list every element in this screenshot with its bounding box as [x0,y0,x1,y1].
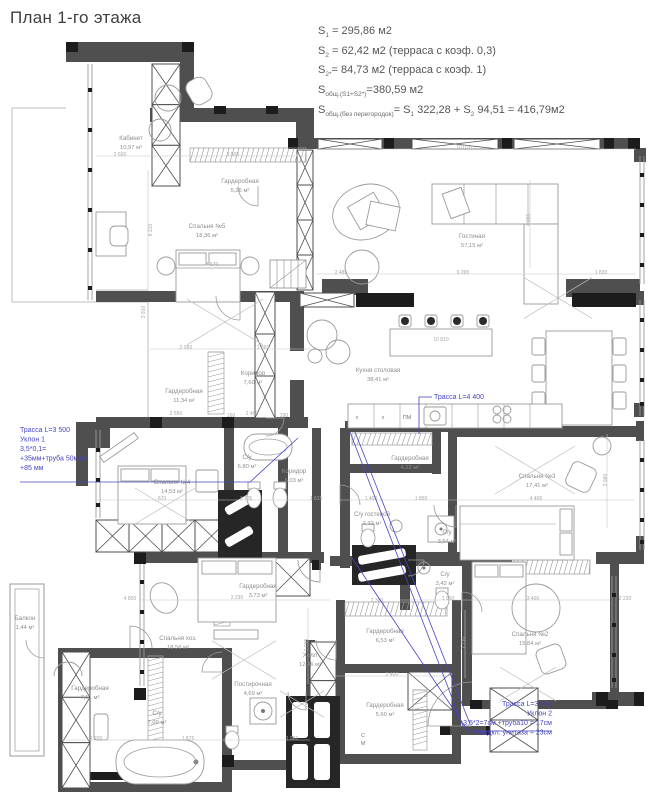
room-label: Гардеробная [165,388,202,395]
room-label: Коридор [282,468,307,475]
room-area: 18,36 м² [196,233,218,239]
plumbing-annotation: Трасса L=4 400 [434,394,484,401]
room-area: 18,56 м² [167,645,189,651]
plumbing-annotation: Уклон 2 [527,711,552,718]
room-label: С/у [242,454,252,461]
room-area: 2,32 м² [363,521,382,527]
dimension-text: 1 705 [240,496,253,502]
dimension-text: 1 830 [595,270,608,276]
dimension-text: 1 850 [415,496,428,502]
room-area: 6,53 м² [376,638,395,644]
dimension-text: 3 505 [227,152,240,158]
room-label: Кабинет [119,135,143,142]
room-area: 3,54 м² [438,539,457,545]
room-area: 57,15 м² [461,243,483,249]
room-area: 6,03 м² [285,478,304,484]
dimension-text: 2 230 [619,596,632,602]
room-label: Спальня №4 [154,479,191,486]
dimension-text: 4 850 [124,596,137,602]
room-label: Спальня №2 [512,631,549,638]
room-area: 7,60 м² [244,380,263,386]
dimension-text: 4 400 [530,496,543,502]
dimension-text: 670 [158,496,167,502]
room-area: 3,73 м² [249,593,268,599]
room-area: 15,84 м² [519,641,541,647]
room-label: Спальня №3 [519,473,556,480]
plumbing-annotation: 3,5*0,1= [20,446,46,453]
dimension-text: 1 615 [310,496,323,502]
plumbing-annotation: Н подкл. унитаза = 23см [473,730,552,737]
dimension-text: 10 810 [433,337,449,343]
fixture-label: С [361,733,365,739]
dimension-text: 2 400 [386,672,399,678]
room-area: 4,22 м² [401,465,420,471]
room-area: 12,46 м² [299,662,321,668]
dimension-text: 2 200 [90,736,103,742]
fixture-label: ПМ [403,415,412,421]
room-area: 7,09 м² [148,720,167,726]
dimension-text: 3 910 [141,306,147,319]
room-area: 4,69 м² [244,691,263,697]
room-area: 1,44 м² [16,625,35,631]
floor-plan-drawing: Кабинет10,97 м²Гардеробная5,26 м²Спальня… [0,0,651,800]
room-area: 7,51 м² [81,695,100,701]
dimension-text: 3 400 [527,596,540,602]
dimension-text: 1 095 [304,639,310,652]
floor-plan-page: План 1-го этажа S1 = 295,86 м2S2 = 62,42… [0,0,651,800]
room-area: 6,80 м² [238,464,257,470]
plumbing-annotation: Уклон 1 [20,437,45,444]
room-label: Гардеробная [366,628,403,635]
room-area: 3,42 м² [436,581,455,587]
room-label: С/у [440,571,450,578]
dimension-text: 2 600 [114,152,127,158]
plumbing-annotation: +35мм+труба 50мм= [20,455,87,463]
dimension-text: 160 [227,413,236,419]
room-label: Постирочная [234,681,271,688]
room-label: Гардеробная [391,455,428,462]
dimension-text: 2 360 [371,598,384,604]
room-label: Гардеробная [221,178,258,185]
dimension-text: 3 980 [603,474,609,487]
dimension-text: 2 950 [180,345,193,351]
plumbing-annotation: Трасса L=3 500 [20,427,70,434]
room-area: 11,34 м² [173,398,195,404]
dimension-text: 6 295 [457,270,470,276]
dimension-text: 8 310 [148,224,154,237]
room-label: Гардеробная [239,583,276,590]
dimension-text: 4 670 [206,262,219,268]
room-label: Коридор [241,370,266,377]
room-label: С/у гостевой [354,511,391,518]
room-label: Спальня №5 [189,223,226,230]
room-label: Кухня столовая [356,367,401,374]
fixture-label: х [356,415,359,421]
dimension-text: 1 875 [182,736,195,742]
plumbing-annotation: Трасса L=3 000 [502,701,552,708]
dimension-text: 2 485 [335,270,348,276]
room-area: 5,60 м² [376,712,395,718]
room-label: Спальня хоз. [159,635,197,642]
dimension-text: 1 730 [461,637,467,650]
dimension-text: 2 550 [170,411,183,417]
terrace-outline [12,108,148,418]
room-label: Гардеробная [366,702,403,709]
dimension-text: 2 230 [231,595,244,601]
dimension-text: 2 460 [246,411,259,417]
room-area: 14,53 м² [161,489,183,495]
dimension-text: 10 020 [456,145,472,151]
room-label: Гардеробная [71,685,108,692]
dimension-text: 1 960 [286,736,299,742]
room-label: С/у [442,529,452,536]
dimension-text: 1 860 [257,345,270,351]
dimension-text: 4 655 [526,214,532,227]
fixture-label: М [361,741,366,747]
room-label: С/у [152,710,162,717]
fixture-label: х [382,415,385,421]
room-label: Холл [303,652,318,659]
room-area: 10,97 м² [120,145,142,151]
room-area: 5,26 м² [231,188,250,194]
plumbing-annotation: +85 мм [20,465,44,472]
dimension-text: 290 [280,413,289,419]
room-area: 17,41 м² [526,483,548,489]
dimension-text: 1 900 [442,596,455,602]
room-label: Гостиная [459,233,485,240]
room-area: 38,41 м² [367,377,389,383]
room-label: Балкон [15,615,36,622]
plumbing-annotation: 3,5*2=7см +труба10 = 17см [463,719,552,727]
